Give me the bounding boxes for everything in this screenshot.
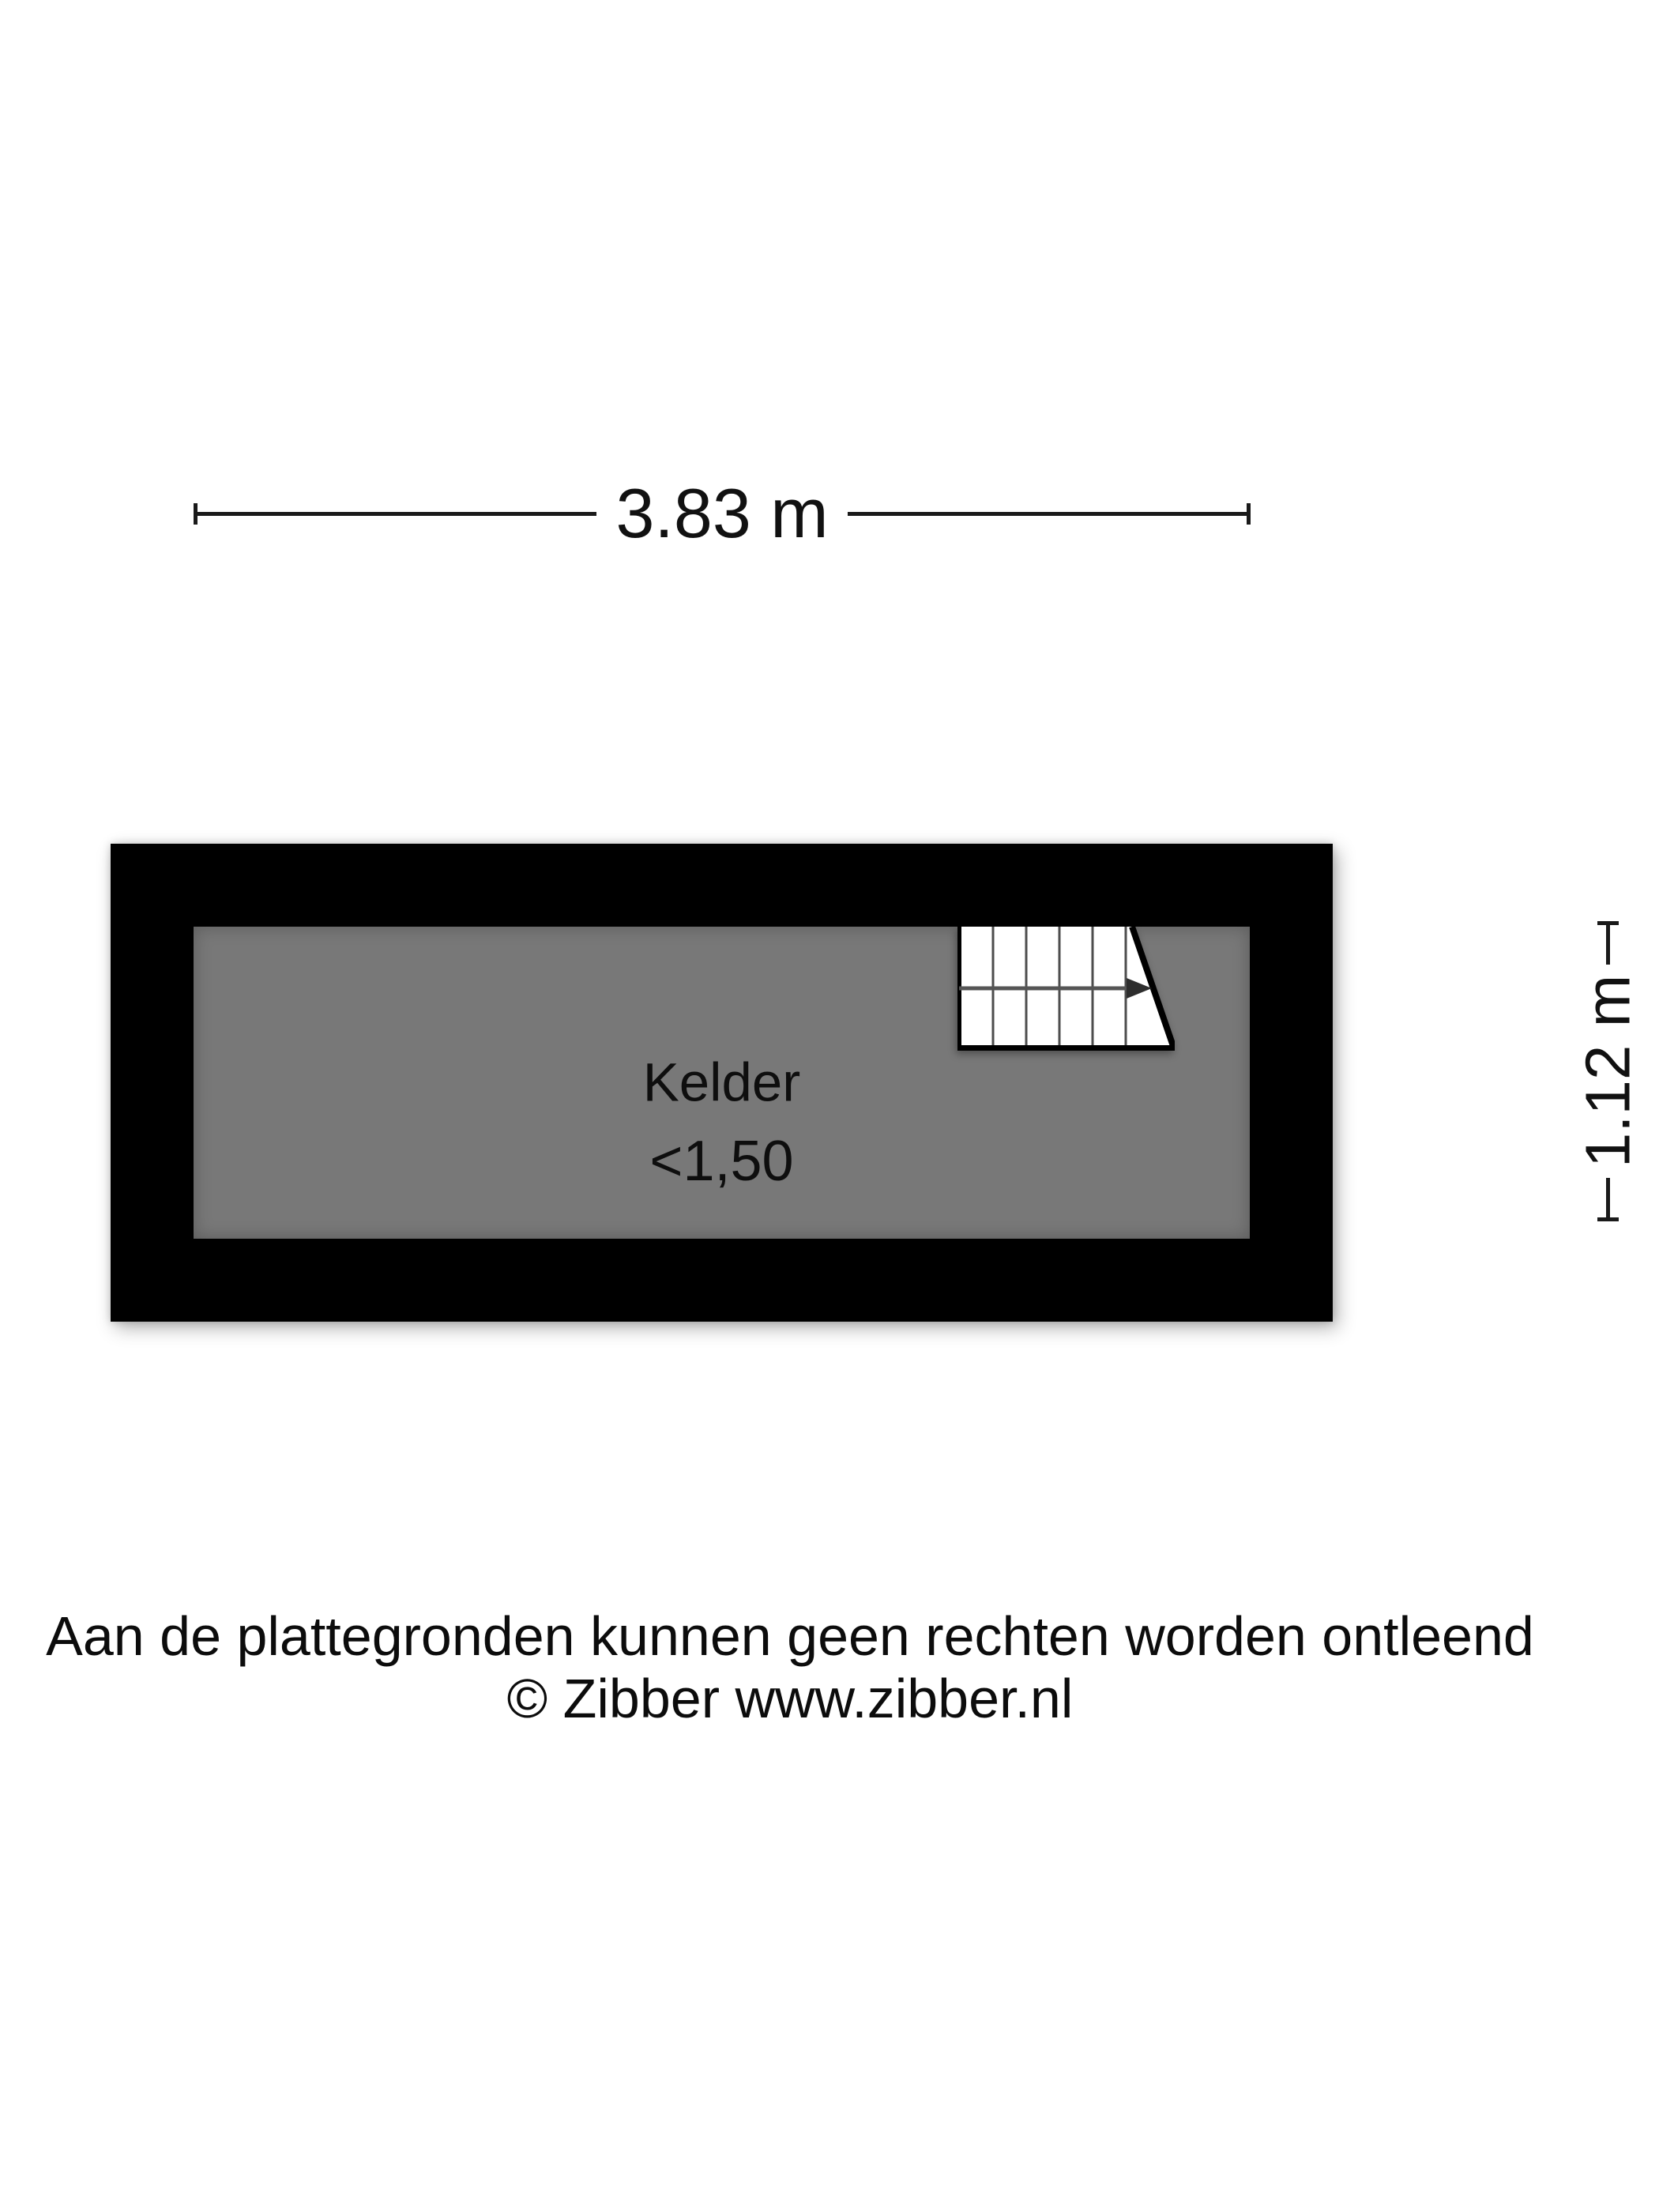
height-dimension: 1.12 m — [1548, 921, 1659, 1221]
dimension-line-left-segment — [197, 512, 596, 516]
dimension-line-bottom-segment — [1606, 1178, 1610, 1217]
dimension-line-top-segment — [1606, 925, 1610, 965]
staircase — [957, 927, 1175, 1051]
footer: Aan de plattegronden kunnen geen rechten… — [0, 1605, 1580, 1730]
height-dimension-label: 1.12 m — [1571, 975, 1644, 1168]
width-dimension: 3.83 m — [194, 495, 1251, 532]
width-dimension-label: 3.83 m — [615, 495, 828, 532]
ceiling-height-label: <1,50 — [649, 1129, 793, 1194]
room-kelder-floor: Kelder <1,50 — [194, 927, 1250, 1239]
copyright-text: © Zibber www.zibber.nl — [0, 1668, 1580, 1730]
dimension-line-right-segment — [848, 512, 1247, 516]
dimension-tick-bottom — [1597, 1217, 1619, 1221]
dimension-tick-right — [1247, 503, 1251, 525]
height-dimension-label-box: 1.12 m — [1511, 965, 1659, 1178]
room-name-label: Kelder — [643, 1051, 800, 1114]
disclaimer-text: Aan de plattegronden kunnen geen rechten… — [0, 1605, 1580, 1668]
floorplan-page: 3.83 m — [0, 0, 1659, 2212]
basement-floor-plan: Kelder <1,50 — [111, 844, 1333, 1322]
